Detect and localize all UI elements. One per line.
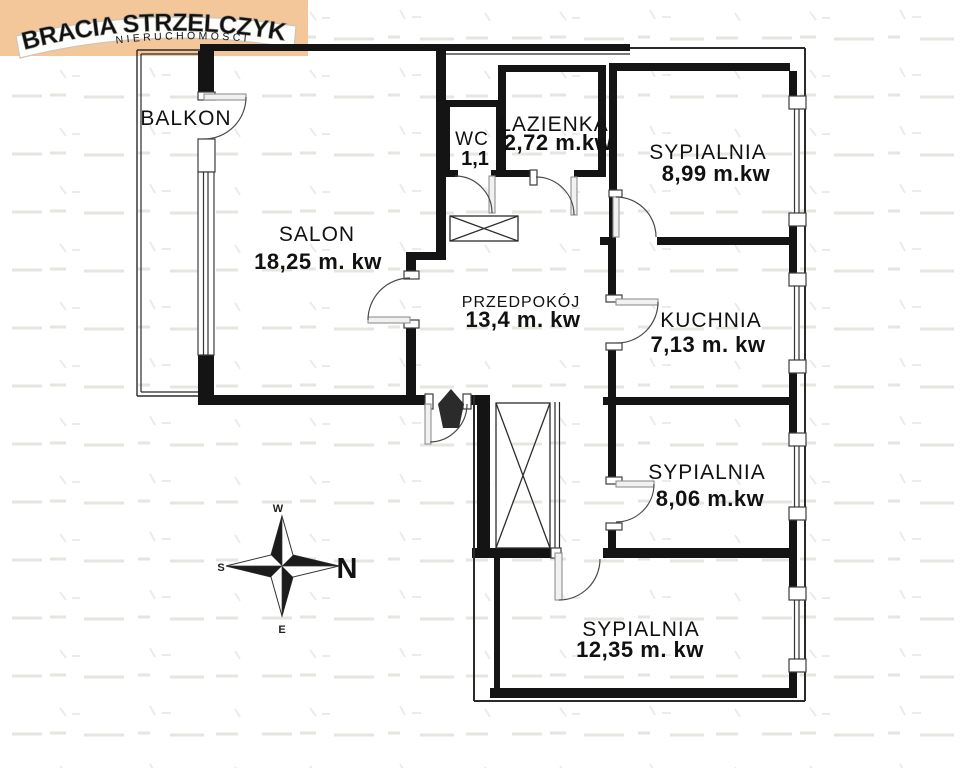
compass-n-label: N [337,553,358,585]
room-name-kuchnia: KUCHNIA [660,309,762,332]
compass-s-label: S [217,562,224,574]
room-name-salon: SALON [279,223,355,246]
room-area-salon: 18,25 m. kw [254,249,382,274]
room-name-balkon: BALKON [140,107,231,130]
compass-e-label: E [278,624,285,636]
room-name-wc: WC [455,129,489,150]
room-area-kuchnia: 7,13 m. kw [650,332,765,357]
floor-plan-image: BRACIA STRZELCZYK NIERUCHOMOŚCI [0,0,960,768]
window-salon [198,139,215,355]
room-area-wc: 1,1 [461,148,489,170]
floor-plan-page: BRACIA STRZELCZYK NIERUCHOMOŚCI [0,0,960,768]
room-name-sypialnia2: SYPIALNIA [648,461,766,484]
compass-w-label: W [273,503,284,515]
room-area-sypialnia1: 8,99 m.kw [662,161,771,186]
room-area-sypialnia2: 8,06 m.kw [656,486,765,511]
room-area-przedpokoj: 13,4 m. kw [465,307,580,332]
room-area-sypialnia3: 12,35 m. kw [576,637,704,662]
room-area-lazienka: 2,72 m.kw [504,130,613,155]
